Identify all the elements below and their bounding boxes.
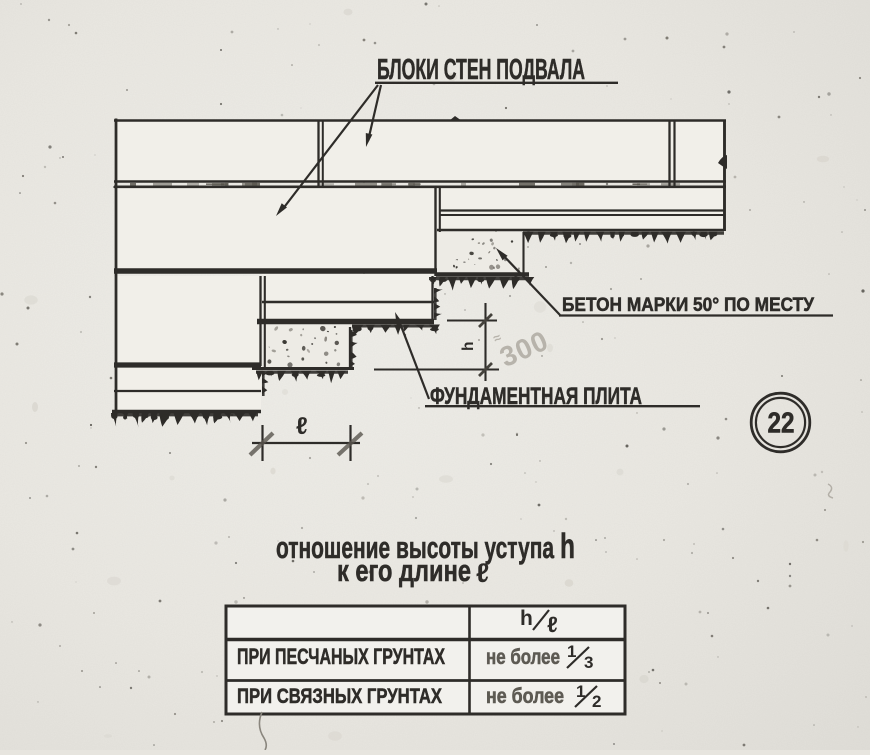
svg-text:ПРИ ПЕСЧАНЫХ ГРУНТАХ: ПРИ ПЕСЧАНЫХ ГРУНТАХ — [237, 644, 445, 669]
svg-text:ℓ: ℓ — [476, 558, 489, 588]
svg-text:не более: не более — [486, 685, 564, 708]
svg-text:22: 22 — [768, 408, 795, 440]
svg-text:h: h — [460, 342, 477, 351]
svg-text:3: 3 — [584, 653, 593, 672]
svg-text:ℓ: ℓ — [547, 612, 558, 637]
svg-text:h: h — [560, 527, 575, 566]
svg-text:1: 1 — [567, 642, 576, 661]
svg-text:ℓ: ℓ — [296, 413, 308, 440]
svg-text:к его длине: к его длине — [337, 553, 471, 588]
svg-text:ПРИ СВЯЗНЫХ ГРУНТАХ: ПРИ СВЯЗНЫХ ГРУНТАХ — [237, 684, 443, 708]
svg-text:БЛОКИ СТЕН ПОДВАЛА: БЛОКИ СТЕН ПОДВАЛА — [377, 54, 585, 86]
svg-text:не более: не более — [486, 646, 560, 669]
svg-text:БЕТОН МАРКИ 50° ПО МЕСТУ: БЕТОН МАРКИ 50° ПО МЕСТУ — [562, 294, 815, 316]
svg-text:2: 2 — [592, 692, 601, 711]
svg-text:h: h — [520, 607, 533, 630]
